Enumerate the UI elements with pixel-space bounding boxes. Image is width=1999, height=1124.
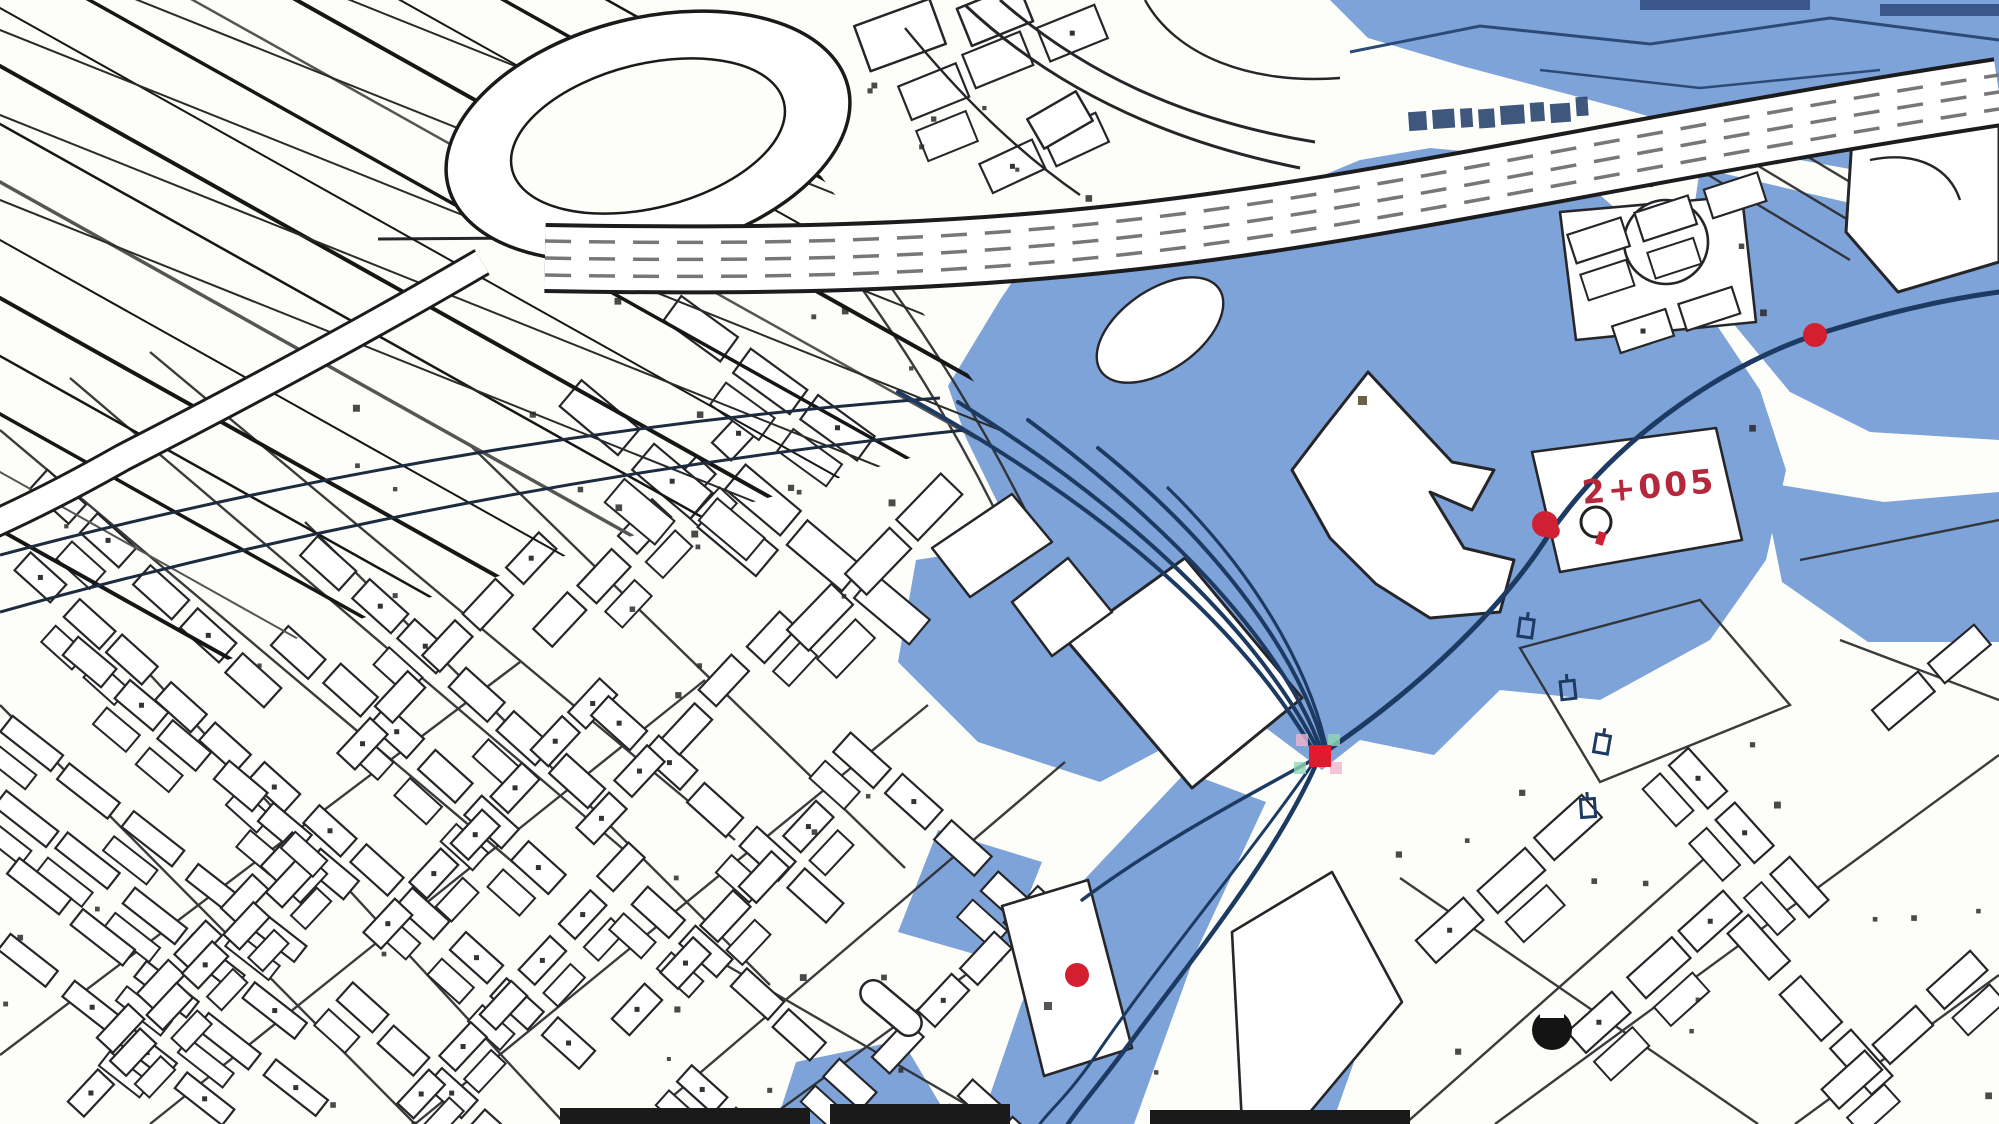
parcel-dot bbox=[385, 921, 390, 926]
submerged-block bbox=[1880, 4, 1999, 16]
parcel-dot bbox=[378, 604, 383, 609]
parcel-dot bbox=[394, 729, 399, 734]
red-dot-northeast bbox=[1803, 323, 1827, 347]
parcel-dot bbox=[206, 633, 211, 638]
parcel-dot bbox=[578, 487, 584, 493]
parcel-dot bbox=[674, 876, 679, 881]
parcel-dot bbox=[898, 1068, 903, 1073]
parcel-dot bbox=[812, 829, 818, 835]
parcel-dot bbox=[919, 144, 924, 149]
parcel-dot bbox=[1010, 164, 1015, 169]
parcel-dot bbox=[536, 865, 541, 870]
parcel-dot bbox=[513, 785, 518, 790]
parcel-dot bbox=[1465, 838, 1470, 843]
parcel-dot bbox=[95, 907, 100, 912]
parcel-dot bbox=[449, 1091, 454, 1096]
bottom-edge-block bbox=[560, 1108, 810, 1124]
illegible-label-block bbox=[1530, 102, 1545, 122]
parcel-dot bbox=[553, 739, 558, 744]
illegible-label-block bbox=[1460, 108, 1473, 128]
parcel-dot bbox=[393, 593, 398, 598]
parcel-dot bbox=[355, 463, 360, 468]
illegible-label-block bbox=[1550, 103, 1571, 123]
parcel-dot bbox=[529, 556, 534, 561]
manhole-notch bbox=[1540, 1009, 1564, 1018]
parcel-dot bbox=[580, 912, 585, 917]
parcel-dot bbox=[461, 1044, 466, 1049]
node-halo-pixel bbox=[1328, 734, 1340, 746]
parcel-dot bbox=[691, 531, 698, 538]
parcel-dot bbox=[1689, 1029, 1693, 1033]
parcel-dot bbox=[423, 644, 428, 649]
parcel-dot bbox=[697, 411, 704, 418]
bottom-edge-block bbox=[830, 1104, 1010, 1124]
parcel-dot bbox=[473, 832, 478, 837]
parcel-dot bbox=[1750, 742, 1755, 747]
parcel-dot bbox=[1154, 1070, 1158, 1074]
red-dot-south bbox=[1065, 963, 1089, 987]
node-halo-pixel bbox=[1294, 762, 1306, 774]
parcel-dot bbox=[670, 479, 675, 484]
parcel-dot bbox=[139, 703, 144, 708]
parcel-dot bbox=[272, 1008, 277, 1013]
parcel-dot bbox=[203, 962, 208, 967]
parcel-dot bbox=[393, 487, 397, 491]
illegible-label-block bbox=[1408, 111, 1427, 131]
building-roof-dot bbox=[1358, 396, 1367, 405]
parcel-dot bbox=[1911, 915, 1917, 921]
parcel-dot bbox=[835, 425, 840, 430]
parcel-dot bbox=[1641, 329, 1646, 334]
parcel-dot bbox=[1015, 168, 1019, 172]
bottom-edge-block bbox=[1150, 1110, 1410, 1124]
illegible-label-block bbox=[1478, 108, 1495, 128]
parcel-dot bbox=[767, 1088, 772, 1093]
parcel-dot bbox=[1985, 1092, 1992, 1099]
parcel-dot bbox=[700, 1087, 705, 1092]
illegible-label-block bbox=[1432, 109, 1455, 129]
parcel-dot bbox=[941, 998, 946, 1003]
parcel-dot bbox=[566, 1041, 571, 1046]
parcel-dot bbox=[617, 721, 622, 726]
parcel-dot bbox=[1873, 917, 1878, 922]
parcel-dot bbox=[353, 405, 360, 412]
parcel-dot bbox=[327, 828, 332, 833]
parcel-dot bbox=[1749, 425, 1756, 432]
parcel-dot bbox=[800, 974, 807, 981]
parcel-dot bbox=[1976, 909, 1981, 914]
parcel-dot bbox=[911, 799, 916, 804]
parcel-dot bbox=[1739, 244, 1745, 250]
parcel-dot bbox=[866, 794, 870, 798]
parcel-dot bbox=[1396, 851, 1402, 857]
parcel-dot bbox=[788, 485, 794, 491]
node-halo-pixel bbox=[1296, 734, 1308, 746]
parcel-dot bbox=[736, 431, 741, 436]
parcel-dot bbox=[431, 871, 436, 876]
parcel-dot bbox=[697, 663, 702, 668]
parcel-dot bbox=[1044, 1002, 1052, 1010]
parcel-dot bbox=[635, 1007, 640, 1012]
parcel-dot bbox=[1591, 878, 1597, 884]
parcel-dot bbox=[293, 1085, 298, 1090]
parcel-dot bbox=[674, 1006, 680, 1012]
parcel-dot bbox=[1708, 919, 1713, 924]
parcel-dot bbox=[630, 606, 635, 611]
parcel-dot bbox=[1696, 776, 1701, 781]
parcel-dot bbox=[909, 366, 913, 370]
parcel-dot bbox=[889, 499, 896, 506]
parcel-dot bbox=[675, 692, 681, 698]
parcel-dot bbox=[797, 490, 802, 495]
parcel-dot bbox=[637, 769, 642, 774]
parcel-dot bbox=[540, 958, 545, 963]
parcel-dot bbox=[272, 785, 277, 790]
parcel-dot bbox=[88, 1090, 93, 1095]
submerged-block bbox=[1640, 0, 1810, 10]
parcel-dot bbox=[202, 1096, 207, 1101]
parcel-dot bbox=[806, 824, 811, 829]
parcel-dot bbox=[1742, 830, 1747, 835]
parcel-dot bbox=[90, 1005, 95, 1010]
parcel-dot bbox=[1696, 998, 1700, 1002]
parcel-dot bbox=[667, 760, 672, 765]
parcel-dot bbox=[982, 106, 986, 110]
illegible-label-block bbox=[1575, 96, 1588, 116]
parcel-dot bbox=[599, 816, 604, 821]
parcel-dot bbox=[696, 545, 701, 550]
parcel-dot bbox=[419, 1091, 424, 1096]
parcel-dot bbox=[106, 538, 111, 543]
illegible-label-block bbox=[1500, 104, 1525, 125]
parcel-dot bbox=[360, 741, 365, 746]
parcel-dot bbox=[257, 663, 261, 667]
parcel-dot bbox=[590, 701, 595, 706]
parcel-dot bbox=[1519, 790, 1525, 796]
parcel-dot bbox=[1643, 881, 1648, 886]
parcel-dot bbox=[667, 1057, 671, 1061]
parcel-dot bbox=[867, 88, 872, 93]
junction-node-marker bbox=[1309, 745, 1331, 767]
parcel-dot bbox=[17, 935, 23, 941]
parcel-dot bbox=[881, 975, 887, 981]
parcel-dot bbox=[1455, 1049, 1461, 1055]
chainage-point-marker bbox=[1544, 523, 1560, 539]
parcel-dot bbox=[1760, 309, 1767, 316]
parcel-dot bbox=[474, 955, 479, 960]
parcel-dot bbox=[64, 524, 68, 528]
node-halo-pixel bbox=[1330, 762, 1342, 774]
flood-map-canvas: 2+005 bbox=[0, 0, 1999, 1124]
parcel-dot bbox=[1596, 1020, 1601, 1025]
parcel-dot bbox=[615, 504, 622, 511]
parcel-dot bbox=[1070, 31, 1075, 36]
parcel-dot bbox=[3, 1002, 8, 1007]
parcel-dot bbox=[1774, 802, 1781, 809]
parcel-dot bbox=[38, 575, 43, 580]
parcel-dot bbox=[683, 961, 688, 966]
parcel-dot bbox=[931, 116, 936, 121]
parcel-dot bbox=[842, 594, 847, 599]
parcel-dot bbox=[871, 83, 877, 89]
parcel-dot bbox=[1447, 928, 1452, 933]
parcel-dot bbox=[330, 1102, 336, 1108]
parcel-dot bbox=[382, 952, 387, 957]
parcel-dot bbox=[811, 314, 816, 319]
parcel-dot bbox=[1086, 195, 1093, 202]
map-svg: 2+005 bbox=[0, 0, 1999, 1124]
